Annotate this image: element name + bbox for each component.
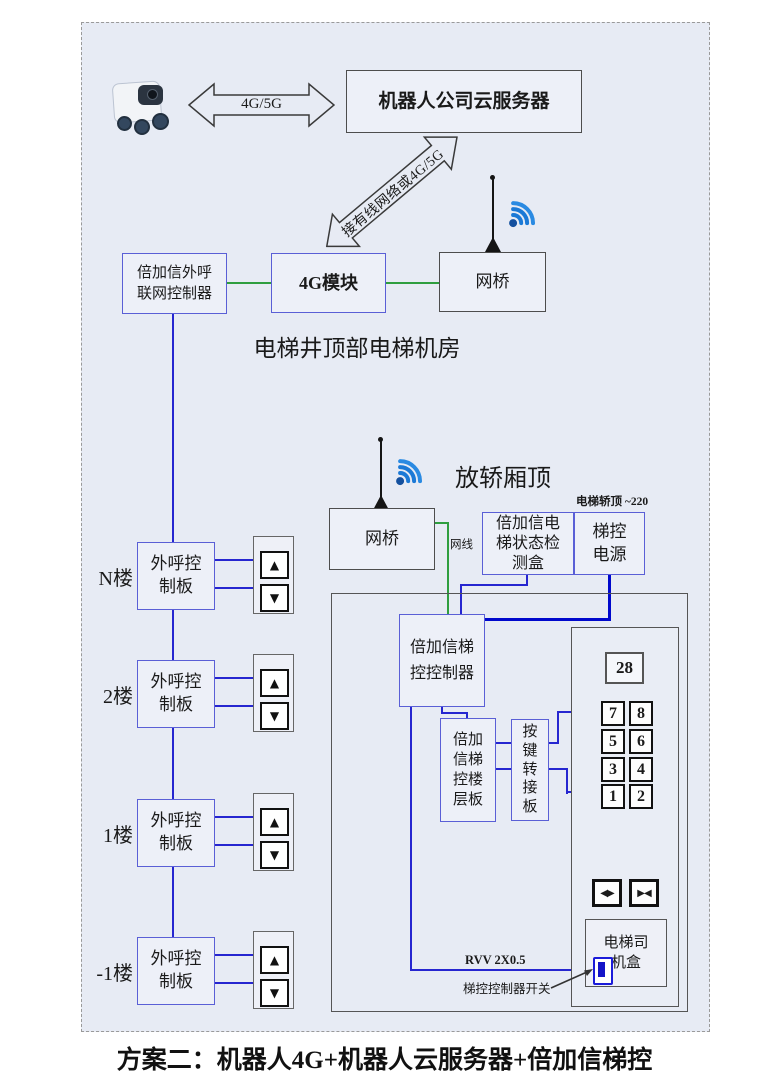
- controller-switch-icon: [593, 957, 613, 985]
- wire-4g-bridge: [384, 282, 439, 284]
- robot-cloud-arrow: 4G/5G: [188, 82, 335, 128]
- door-close-icon: ▶◀: [629, 879, 659, 907]
- floor-label-2: 2楼: [85, 680, 133, 709]
- outcall-board-m1-label: 外呼控 制板: [151, 948, 202, 994]
- bridge-label-2: 网桥: [365, 528, 399, 551]
- keypad-button-8: 8: [629, 701, 653, 726]
- up-button-m1: ▲: [260, 946, 289, 974]
- power-supply-box: 梯控 电源: [574, 512, 645, 575]
- wire-floor-n-up: [213, 559, 254, 561]
- key-adapter-box: 按 键 转 接 板: [511, 719, 549, 821]
- floor-board-label: 倍加 信梯 控楼 层板: [453, 730, 483, 811]
- door-open-icon: ◀▶: [592, 879, 622, 907]
- wire-floor-n-down: [213, 587, 254, 589]
- wire-statusbox-h: [460, 584, 528, 586]
- power-note-label: 电梯轿顶 ~220: [576, 493, 666, 509]
- bridge-box-car-top: 网桥: [329, 508, 435, 570]
- down-button-m1: ▼: [260, 979, 289, 1007]
- up-button-1: ▲: [260, 808, 289, 836]
- keypad-button-7: 7: [601, 701, 625, 726]
- floor-label-m1: -1楼: [85, 957, 133, 986]
- wire-controller-4g: [225, 282, 271, 284]
- keypad-button-6: 6: [629, 729, 653, 754]
- keypad-button-2: 2: [629, 784, 653, 809]
- floor-display: 28: [605, 652, 644, 684]
- wire-floor-2-up: [213, 677, 254, 679]
- machine-room-caption: 电梯井顶部电梯机房: [242, 329, 472, 363]
- switch-annotation-arrow: [549, 962, 595, 992]
- down-button-n: ▼: [260, 584, 289, 612]
- floor-board-box: 倍加 信梯 控楼 层板: [440, 718, 496, 822]
- floor-label-n: N楼: [85, 562, 133, 591]
- outcall-board-n-label: 外呼控 制板: [151, 553, 202, 599]
- down-button-2: ▼: [260, 702, 289, 730]
- wire-floor-1-down: [213, 844, 254, 846]
- wire-floor-m1-up: [213, 954, 254, 956]
- switch-annotation-label: 梯控控制器开关: [463, 978, 551, 997]
- rvv-cable-label: RVV 2X0.5: [465, 953, 525, 968]
- network-cable-label: 网线: [450, 536, 473, 552]
- elevator-status-box: 倍加信电 梯状态检 测盒: [482, 512, 574, 575]
- up-button-2: ▲: [260, 669, 289, 697]
- wire-floor-m1-down: [213, 982, 254, 984]
- keypad-button-3: 3: [601, 757, 625, 782]
- outcall-network-controller-label: 倍加信外呼 联网控制器: [137, 263, 212, 304]
- cloud-server-label: 机器人公司云服务器: [378, 89, 549, 115]
- outcall-board-1-label: 外呼控 制板: [151, 810, 202, 856]
- elevator-status-label: 倍加信电 梯状态检 测盒: [496, 514, 560, 574]
- power-supply-label: 梯控 电源: [593, 521, 627, 567]
- down-button-1: ▼: [260, 841, 289, 869]
- cloud-server-box: 机器人公司云服务器: [346, 70, 582, 133]
- floor-label-1: 1楼: [85, 819, 133, 848]
- keypad-button-4: 4: [629, 757, 653, 782]
- outcall-board-2-label: 外呼控 制板: [151, 671, 202, 717]
- 4g-module-label: 4G模块: [299, 271, 358, 295]
- outcall-board-n: 外呼控 制板: [137, 542, 215, 610]
- elevator-controller-label: 倍加信梯 控控制器: [410, 635, 474, 686]
- wire-floor-2-down: [213, 705, 254, 707]
- elevator-controller-box: 倍加信梯 控控制器: [399, 614, 485, 707]
- keypad-button-1: 1: [601, 784, 625, 809]
- page-caption: 方案二：机器人4G+机器人云服务器+倍加信梯控: [0, 1040, 769, 1076]
- key-adapter-label: 按 键 转 接 板: [522, 723, 537, 817]
- 4g-module-box: 4G模块: [271, 253, 386, 313]
- outcall-network-controller-box: 倍加信外呼 联网控制器: [122, 253, 227, 314]
- arrow-4g5g-label: 4G/5G: [188, 96, 335, 113]
- wire-floor-1-up: [213, 816, 254, 818]
- outcall-board-m1: 外呼控 制板: [137, 937, 215, 1005]
- bridge-box-machine-room: 网桥: [439, 252, 546, 312]
- diagram-page: 4G/5G 机器人公司云服务器 接有线网络或4G/5G 倍加信外呼 联网控制器 …: [0, 0, 769, 1090]
- car-top-title: 放轿厢顶: [455, 458, 575, 493]
- bridge-label-1: 网桥: [476, 271, 510, 294]
- keypad-button-5: 5: [601, 729, 625, 754]
- up-button-n: ▲: [260, 551, 289, 579]
- outcall-board-1: 外呼控 制板: [137, 799, 215, 867]
- robot-icon: [111, 76, 169, 130]
- outcall-board-2: 外呼控 制板: [137, 660, 215, 728]
